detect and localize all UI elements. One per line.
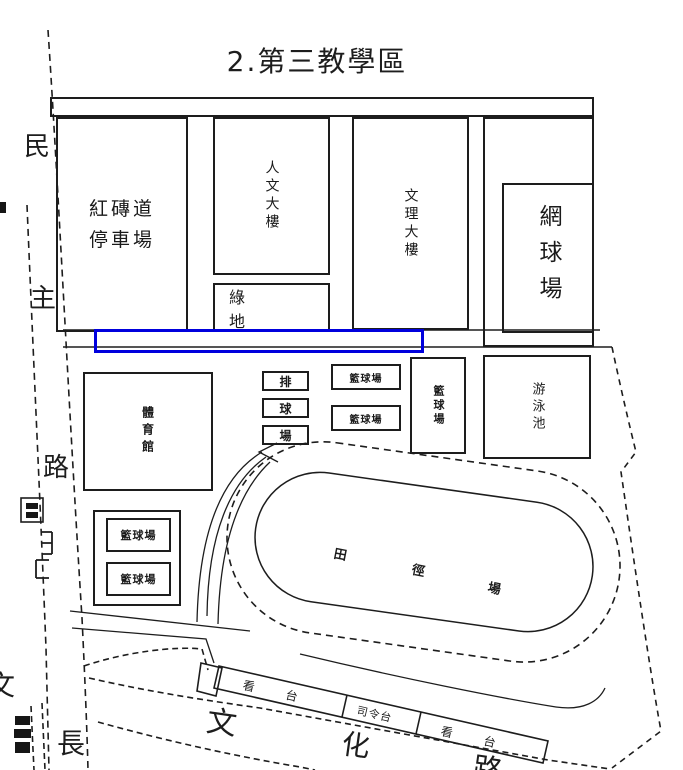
south-road-char-3: 路 [470,743,506,770]
basketball-court-sw-1: 籃球場 [106,518,171,552]
southwest-corner-blob-2 [14,729,31,738]
north-corridor [50,97,594,117]
west-branch-edge-1 [31,706,34,770]
west-road-char-3: 路 [43,447,69,484]
track-lane-arc-2 [207,457,266,616]
volleyball-char-3: 場 [279,427,291,444]
volleyball-char-2: 球 [279,400,291,417]
basketball-sw-1-label: 籃球場 [121,527,157,543]
gymnasium-label: 體育館 [140,406,157,457]
southwest-corner-blob [15,716,30,725]
tennis-court: 網球場 [502,183,594,333]
gate-glyphs [36,532,52,578]
east-boundary [612,347,661,768]
humanities-label: 人文大樓 [262,160,282,232]
volleyball-court-box-1: 排 [262,371,309,391]
track-lane-arc-3 [218,462,270,624]
sw-boundary-curve [84,648,208,670]
building-gymnasium: 體育館 [83,372,213,491]
basketball-mid-2-label: 籃球場 [350,411,383,426]
parking-label-line2: 停車場 [89,225,155,256]
liberal-arts-label: 文理大樓 [401,188,421,260]
basketball-mid-1-label: 籃球場 [350,370,383,385]
parking-label-line1: 紅磚道 [89,194,155,225]
building-humanities: 人文大樓 [213,117,330,275]
basketball-court-east: 籃球場 [410,357,466,454]
basketball-court-mid-1: 籃球場 [331,364,401,390]
south-road-char-1: 文 [204,696,240,744]
sw-path-line-2 [72,628,214,663]
map-title: 2.第三教學區 [167,40,467,80]
volleyball-court-box-3: 場 [262,425,309,445]
basketball-east-label: 籃球場 [430,385,446,427]
southwest-road-partial-char: 文 [0,664,15,704]
swimming-pool-label: 游泳池 [528,382,547,433]
basketball-court-mid-2: 籃球場 [331,405,401,431]
tennis-court-label: 網球場 [531,204,565,312]
sw-path-line-1 [70,611,250,631]
green-space: 綠地 [213,283,330,332]
west-road-small-box-label-2 [26,512,38,518]
volleyball-char-1: 排 [279,373,291,390]
basketball-sw-2-label: 籃球場 [121,571,157,587]
basketball-court-sw-2: 籃球場 [106,562,171,596]
track-outer-ring [215,429,633,674]
highlight-region-box[interactable] [94,329,424,353]
campus-map: 2.第三教學區 紅磚道 停車場 人文大樓 綠地 文理大樓 網球場 體育館 排 球… [0,0,683,770]
west-road-char-2: 主 [30,278,56,315]
west-road-char-1: 民 [24,126,50,163]
building-liberal-arts: 文理大樓 [352,117,469,330]
southwest-corner-blob-3 [15,742,30,753]
building-parking-lot: 紅磚道 停車場 [56,117,188,332]
south-road-char-2: 化 [339,722,372,766]
swimming-pool: 游泳池 [483,355,591,459]
stands-divider-2 [416,712,421,734]
stands-divider-1 [342,695,347,717]
southwest-road-char: 長 [57,722,85,762]
left-edge-tick [0,202,6,213]
west-branch-edge-2 [42,703,45,770]
track-infield [247,464,602,640]
west-road-small-box-label [26,503,38,509]
green-space-label: 綠地 [229,284,328,332]
volleyball-court-box-2: 球 [262,398,309,418]
